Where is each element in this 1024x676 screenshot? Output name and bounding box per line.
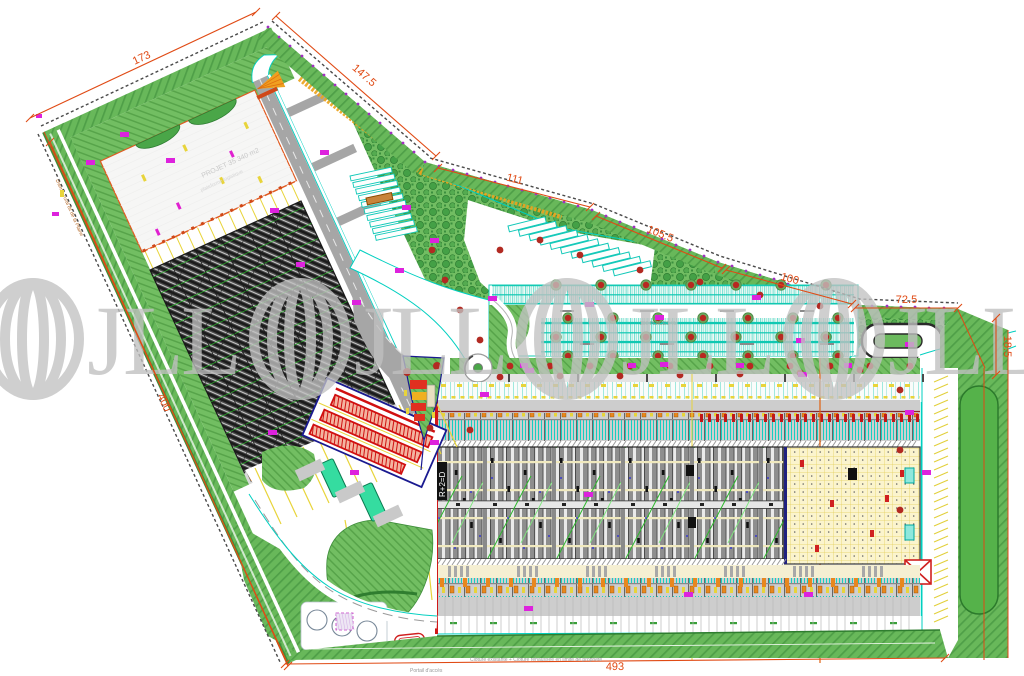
svg-text:Clôture existante + Clôture re: Clôture existante + Clôture rehaussée en… <box>470 657 602 663</box>
svg-text:Portail d'accès: Portail d'accès <box>410 668 443 674</box>
svg-text:JLL: JLL <box>621 285 773 396</box>
svg-text:JLL: JLL <box>87 285 239 396</box>
svg-text:493: 493 <box>606 661 624 673</box>
svg-text:72.5: 72.5 <box>896 294 917 306</box>
svg-text:JLL: JLL <box>354 285 506 396</box>
svg-text:R+2=D: R+2=D <box>438 471 447 497</box>
svg-text:18.5: 18.5 <box>1001 336 1013 357</box>
